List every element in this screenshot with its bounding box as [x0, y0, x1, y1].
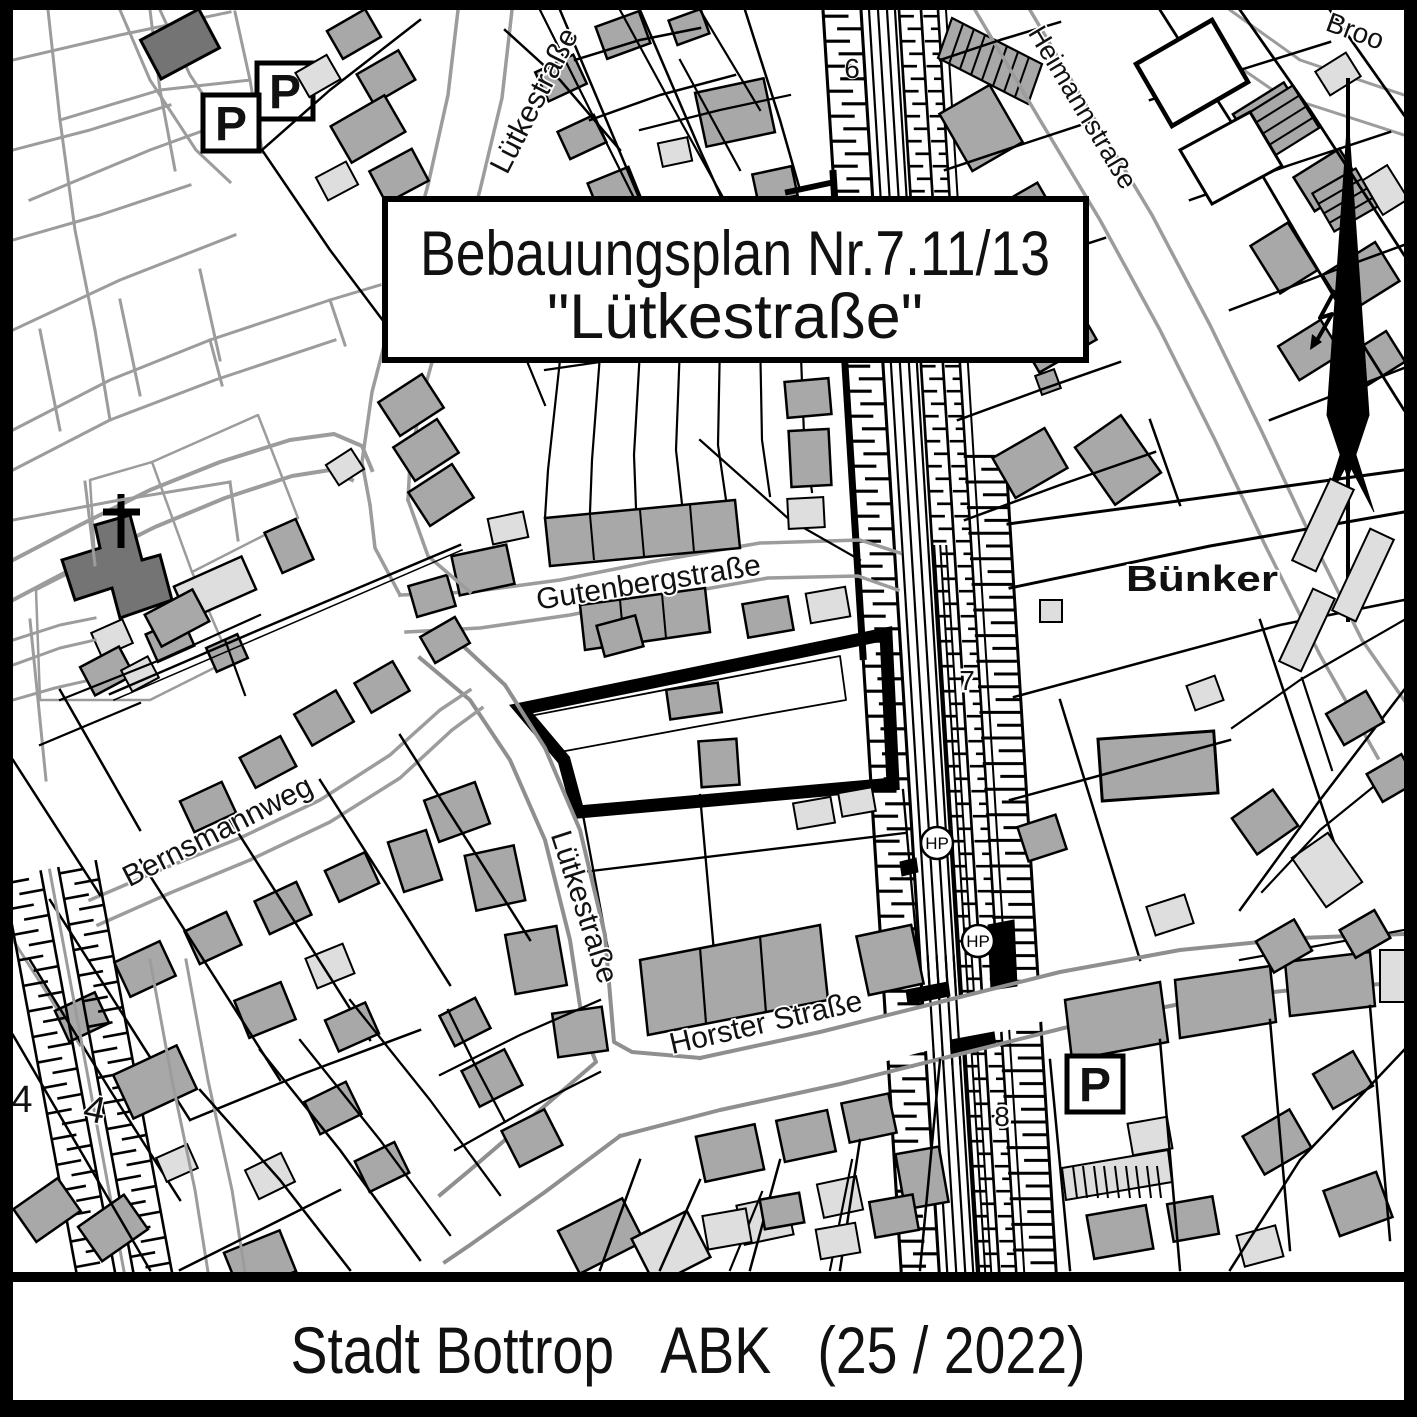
- svg-text:"Lütkestraße": "Lütkestraße": [547, 282, 923, 352]
- svg-text:4: 4: [11, 1079, 32, 1121]
- svg-text:7: 7: [959, 665, 975, 696]
- svg-text:8: 8: [994, 1101, 1010, 1132]
- svg-text:6: 6: [844, 53, 860, 84]
- svg-text:HP: HP: [925, 834, 949, 853]
- svg-text:HP: HP: [966, 932, 990, 951]
- svg-text:Bebauungsplan Nr.7.11/13: Bebauungsplan Nr.7.11/13: [420, 219, 1050, 289]
- svg-text:Bünker: Bünker: [1126, 558, 1278, 599]
- svg-text:P: P: [215, 98, 247, 151]
- svg-text:Stadt Bottrop ABK (25 / 20: Stadt Bottrop ABK (25 / 2022): [291, 1313, 1086, 1387]
- svg-text:P: P: [1079, 1059, 1111, 1112]
